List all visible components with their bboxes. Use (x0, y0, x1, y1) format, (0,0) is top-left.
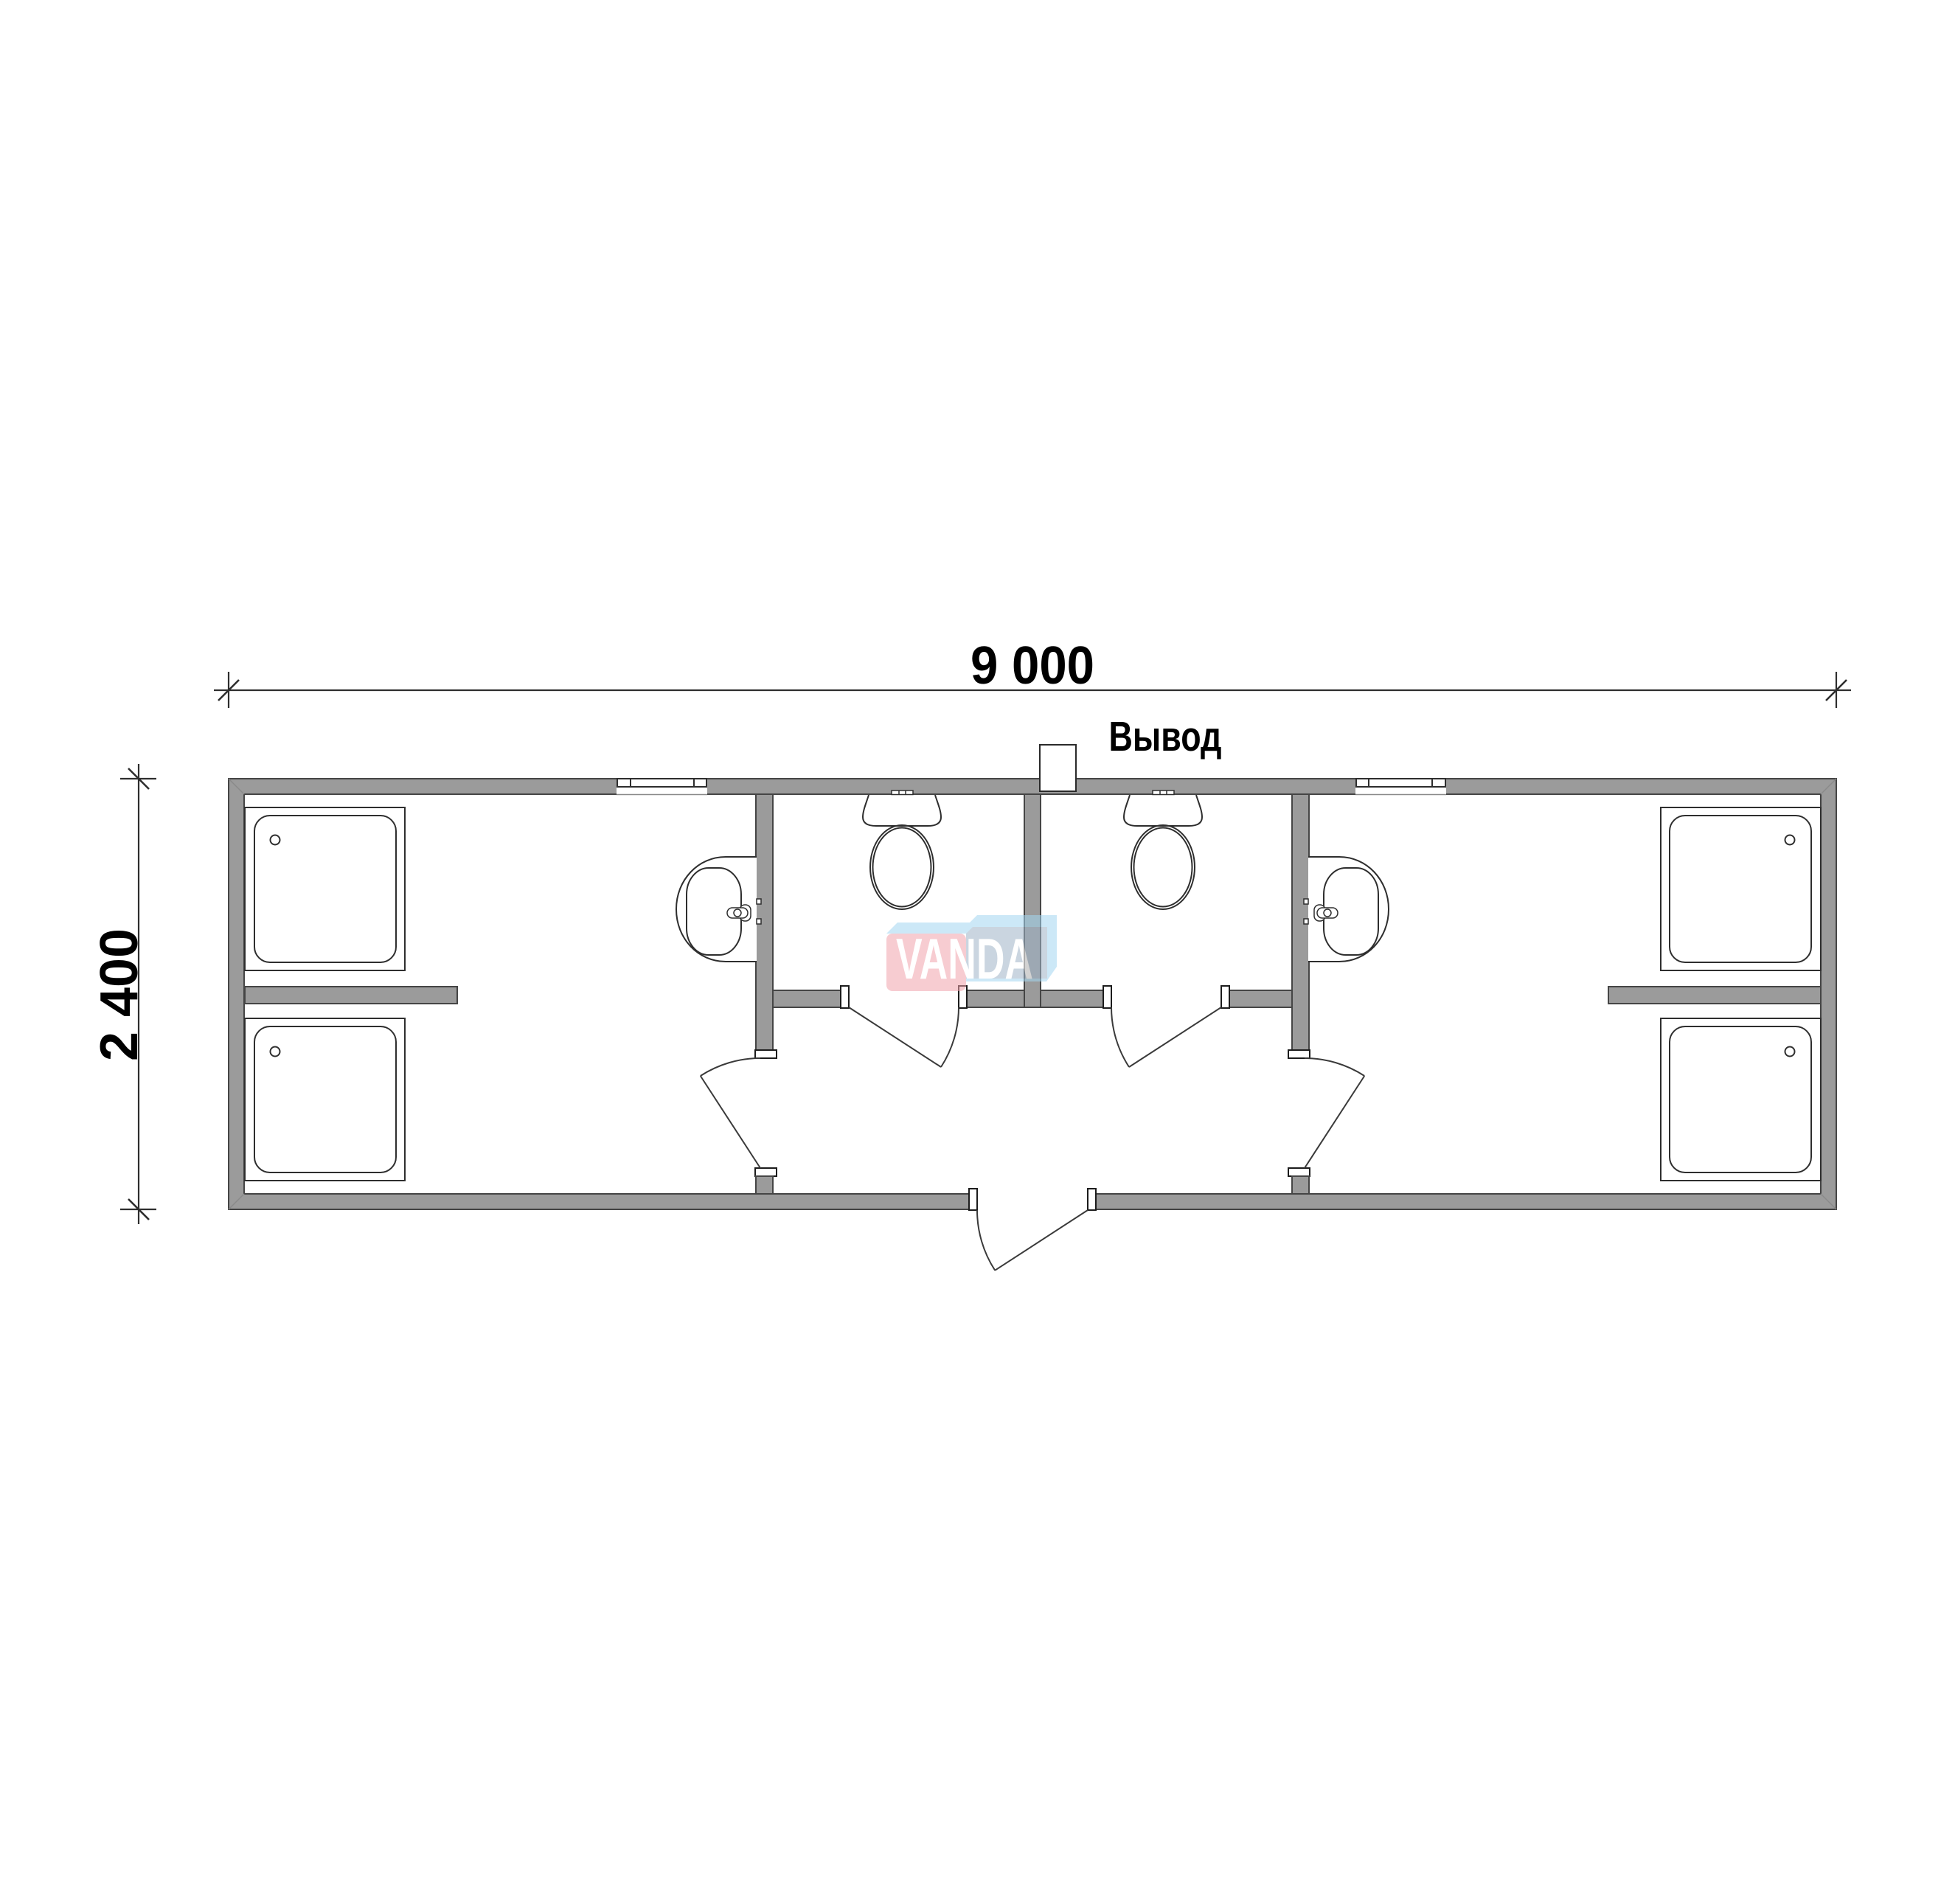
svg-text:2 400: 2 400 (90, 928, 149, 1061)
svg-text:VANDA: VANDA (896, 926, 1033, 991)
svg-text:Вывод: Вывод (1109, 713, 1222, 760)
svg-text:9 000: 9 000 (970, 636, 1094, 695)
